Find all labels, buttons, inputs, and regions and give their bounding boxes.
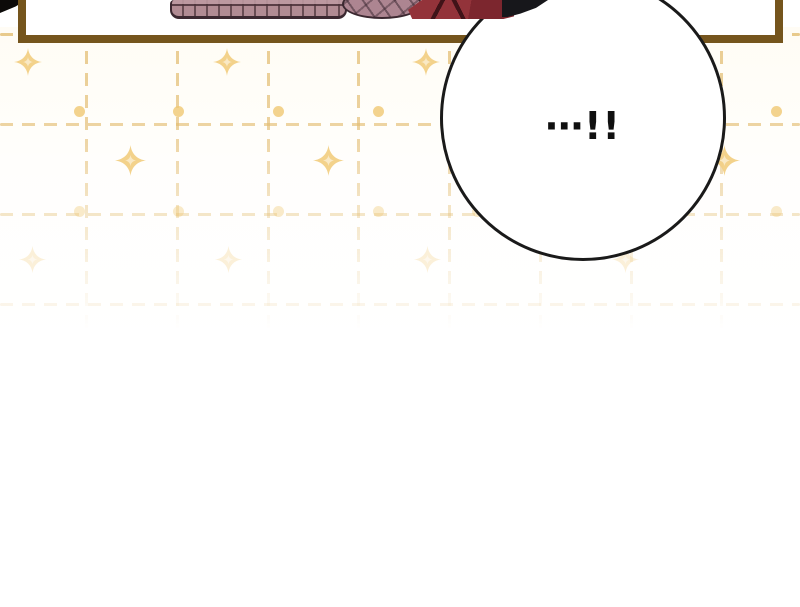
- sparkle-icon: [19, 246, 46, 273]
- sparkle-icon: [313, 145, 344, 176]
- pattern-dot: [273, 206, 284, 217]
- grid-vline: [267, 29, 270, 335]
- grid-hline: [0, 303, 800, 306]
- pattern-dot: [74, 106, 85, 117]
- grid-vline: [720, 29, 723, 335]
- pattern-dot: [173, 106, 184, 117]
- sparkle-icon: [414, 246, 441, 273]
- red-garment: [408, 0, 514, 19]
- pattern-dot: [273, 106, 284, 117]
- pattern-dot: [771, 106, 782, 117]
- webtoon-page: ⋯!!: [0, 0, 800, 607]
- pattern-dot: [173, 206, 184, 217]
- pattern-dot: [771, 206, 782, 217]
- sparkle-icon: [412, 48, 440, 76]
- grid-vline: [85, 29, 88, 335]
- knitted-sweater-hem: [170, 0, 347, 19]
- sparkle-icon: [213, 48, 241, 76]
- pattern-dot: [74, 206, 85, 217]
- grid-vline: [176, 29, 179, 335]
- sparkle-icon: [215, 246, 242, 273]
- speech-bubble-text: ⋯!!: [545, 91, 621, 145]
- grid-vline: [357, 29, 360, 335]
- sparkle-icon: [115, 145, 146, 176]
- pattern-dot: [373, 206, 384, 217]
- pattern-dot: [373, 106, 384, 117]
- sparkle-icon: [14, 48, 42, 76]
